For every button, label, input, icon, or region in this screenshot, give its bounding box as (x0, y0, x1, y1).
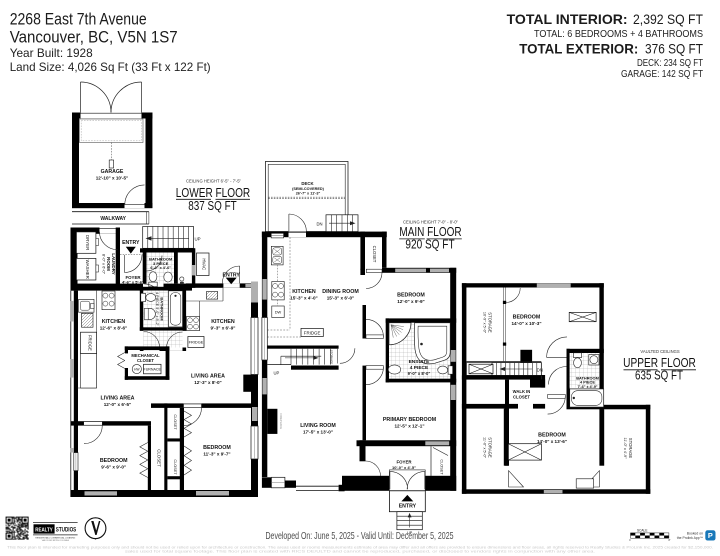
svg-text:STORAGE: STORAGE (330, 350, 334, 365)
svg-text:STORAGE: STORAGE (628, 438, 633, 459)
svg-text:FURNACE: FURNACE (144, 368, 162, 372)
svg-text:10'-0" x 4'-5": 10'-0" x 4'-5" (392, 465, 416, 470)
svg-text:BEDROOM: BEDROOM (513, 315, 541, 321)
svg-text:ENSUITE: ENSUITE (409, 359, 431, 365)
svg-text:12'-0" x 6'-5": 12'-0" x 6'-5" (104, 402, 131, 407)
svg-text:15'-3" x 6'-0": 15'-3" x 6'-0" (327, 296, 354, 301)
svg-text:KITCHEN: KITCHEN (102, 319, 126, 325)
svg-text:9'-6" x 9'-0": 9'-6" x 9'-0" (101, 465, 126, 470)
svg-text:12'-6" x 8'-6": 12'-6" x 8'-6" (100, 326, 127, 331)
svg-text:WALK IN: WALK IN (513, 389, 531, 394)
svg-text:CEILING HEIGHT 6'-5" - 7'-5": CEILING HEIGHT 6'-5" - 7'-5" (186, 179, 241, 185)
svg-text:2,392 SQ FT: 2,392 SQ FT (633, 11, 703, 27)
svg-text:BATHROOM: BATHROOM (160, 297, 165, 321)
svg-text:11'-3" x 9'-7": 11'-3" x 9'-7" (203, 452, 230, 457)
svg-text:Land Size: 4,026 Sq Ft (33 Ft: Land Size: 4,026 Sq Ft (33 Ft x 122 Ft) (10, 60, 211, 74)
svg-text:TOTAL: 6 BEDROOMS + 4 BATHROO: TOTAL: 6 BEDROOMS + 4 BATHROOMS (534, 29, 703, 40)
svg-text:PRIMARY BEDROOM: PRIMARY BEDROOM (383, 417, 437, 423)
svg-text:UP: UP (274, 371, 280, 376)
svg-text:sales used for total square fo: sales used for total square footage. Thi… (125, 549, 595, 554)
svg-text:14'-0" x 13'-6": 14'-0" x 13'-6" (537, 439, 567, 444)
svg-text:10'-9" x 5'-0": 10'-9" x 5'-0" (482, 312, 486, 334)
svg-text:BEDROOM: BEDROOM (538, 433, 566, 439)
svg-text:BEDROOM: BEDROOM (100, 458, 128, 464)
svg-text:P: P (708, 531, 713, 540)
svg-text:26'-7" x 11'-3": 26'-7" x 11'-3" (296, 191, 321, 195)
svg-text:12'-3" x 8'-0": 12'-3" x 8'-0" (194, 380, 221, 385)
svg-text:HVAC: HVAC (202, 258, 207, 270)
svg-text:KITCHEN: KITCHEN (211, 319, 235, 325)
svg-text:FIREPLACE: FIREPLACE (279, 414, 283, 430)
svg-text:11'-0" x 4'-9": 11'-0" x 4'-9" (623, 438, 627, 460)
svg-text:CLOSET: CLOSET (173, 459, 177, 475)
svg-text:2268 East 7th Avenue: 2268 East 7th Avenue (10, 11, 147, 29)
svg-text:CLOSET: CLOSET (137, 358, 154, 363)
svg-text:8'-0" x 6'-0": 8'-0" x 6'-0" (101, 254, 106, 275)
svg-text:17'-5" x 13'-0": 17'-5" x 13'-0" (303, 430, 333, 435)
svg-text:LIVING AREA: LIVING AREA (101, 396, 135, 402)
svg-text:CLOSET: CLOSET (513, 395, 530, 400)
svg-text:ENTRY: ENTRY (399, 504, 417, 510)
svg-text:WASHER: WASHER (85, 260, 90, 279)
svg-text:DECK: DECK (301, 181, 314, 186)
svg-text:STUDIOS: STUDIOS (56, 528, 77, 534)
svg-text:376 SQ FT: 376 SQ FT (645, 41, 703, 57)
svg-text:REALTY: REALTY (35, 527, 53, 533)
svg-text:12'-10" x 10'-5": 12'-10" x 10'-5" (96, 176, 129, 181)
svg-text:12'-0" x 9'-9": 12'-0" x 9'-9" (397, 299, 424, 304)
svg-text:RESIDENTIAL | COMMERCIAL |: RESIDENTIAL | COMMERCIAL | LEASING (35, 537, 75, 540)
svg-text:Developed On: June 5, 2025 - V: Developed On: June 5, 2025 - Valid Until… (266, 530, 454, 542)
svg-text:DECK: 234 SQ FT: DECK: 234 SQ FT (637, 58, 703, 69)
svg-text:7'-6" x 4'-9": 7'-6" x 4'-9" (577, 385, 597, 389)
svg-text:11'-0" x 5'-0": 11'-0" x 5'-0" (482, 437, 486, 459)
svg-text:STORAGE: STORAGE (487, 437, 492, 458)
svg-text:GARAGE: GARAGE (101, 169, 124, 175)
svg-text:DN: DN (537, 367, 543, 372)
svg-text:9'-3" x 6'-9": 9'-3" x 6'-9" (211, 326, 236, 331)
svg-text:WALKWAY: WALKWAY (100, 216, 126, 222)
svg-text:FRIDGE: FRIDGE (304, 331, 321, 336)
svg-text:FOYER: FOYER (396, 459, 412, 464)
svg-text:Vancouver, BC, V5N 1S7: Vancouver, BC, V5N 1S7 (10, 29, 178, 47)
svg-text:KITCHEN: KITCHEN (292, 289, 316, 295)
svg-text:15'-3" x 4'-0": 15'-3" x 4'-0" (290, 296, 317, 301)
svg-text:the Prolink App™: the Prolink App™ (677, 536, 703, 540)
svg-text:UP: UP (194, 236, 200, 241)
svg-text:ENTRY: ENTRY (122, 240, 140, 246)
svg-text:LIVING AREA: LIVING AREA (191, 374, 225, 380)
svg-text:4 PIECE 5'-0" x 8'-2": 4 PIECE 5'-0" x 8'-2" (155, 292, 159, 326)
svg-text:TOTAL EXTERIOR:: TOTAL EXTERIOR: (519, 41, 638, 57)
svg-text:635 SQ FT: 635 SQ FT (635, 367, 683, 382)
svg-text:BEDROOM: BEDROOM (203, 445, 231, 451)
svg-text:TOTAL INTERIOR:: TOTAL INTERIOR: (507, 11, 628, 27)
svg-text:920 SQ FT: 920 SQ FT (405, 237, 454, 252)
svg-text:STORAGE: STORAGE (487, 312, 492, 333)
svg-text:SCALE: SCALE (637, 528, 647, 532)
svg-text:DRYER: DRYER (85, 235, 90, 250)
svg-text:VAULTED CEILINGS: VAULTED CEILINGS (640, 349, 679, 355)
svg-text:DINING ROOM: DINING ROOM (322, 289, 359, 295)
svg-text:GARAGE: 142 SQ FT: GARAGE: 142 SQ FT (621, 69, 703, 80)
svg-text:12'-5" x 12'-1": 12'-5" x 12'-1" (394, 424, 424, 429)
svg-text:FRIDGE: FRIDGE (88, 335, 93, 351)
svg-text:Year Built: 1928: Year Built: 1928 (10, 46, 93, 60)
svg-text:FRIDGE: FRIDGE (189, 340, 204, 345)
svg-text:CLOSET: CLOSET (372, 246, 377, 263)
svg-text:CLOSET: CLOSET (173, 414, 177, 430)
svg-text:VANCOUVER BRITISH COLUMBIA: VANCOUVER BRITISH COLUMBIA (42, 539, 70, 542)
svg-text:9'-0" x 8'-0": 9'-0" x 8'-0" (408, 371, 431, 376)
svg-text:CLOSET: CLOSET (440, 459, 444, 475)
svg-text:837 SQ FT: 837 SQ FT (188, 198, 237, 213)
svg-text:HW: HW (134, 368, 139, 372)
svg-text:LIVING ROOM: LIVING ROOM (300, 423, 336, 429)
svg-text:14'-0" x 10'-3": 14'-0" x 10'-3" (511, 321, 541, 326)
svg-text:DN: DN (316, 221, 322, 226)
svg-text:DW: DW (275, 310, 282, 315)
svg-text:CLOSET: CLOSET (157, 449, 162, 467)
svg-text:BEDROOM: BEDROOM (397, 293, 425, 299)
